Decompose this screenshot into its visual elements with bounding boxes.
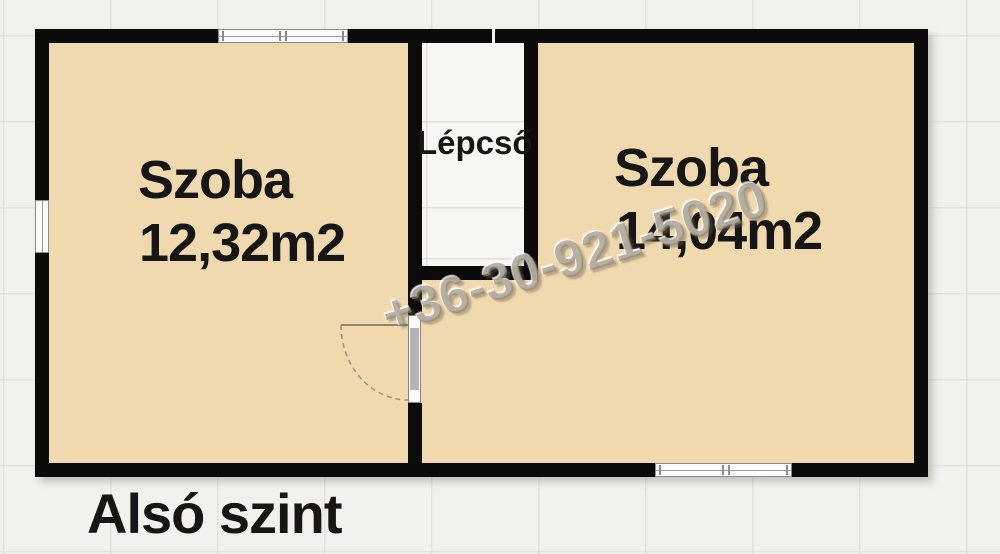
- window-tick: [285, 31, 287, 41]
- window-tick: [722, 465, 724, 475]
- outer-wall-bottom: [35, 463, 928, 477]
- window-tick: [659, 465, 661, 475]
- floor-plan: Szoba 12,32m2 Szoba 14,04m2 Lépcső Alsó …: [0, 0, 1000, 554]
- window-tick: [222, 31, 224, 41]
- window-tick: [342, 31, 344, 41]
- room-left-area-label: 12,32m2: [139, 216, 345, 270]
- window-left-icon: [35, 200, 49, 253]
- outer-wall-top: [35, 29, 928, 43]
- level-label: Alsó szint: [87, 486, 341, 542]
- staircase-label: Lépcső: [417, 126, 533, 159]
- window-tick: [728, 465, 730, 475]
- window-pane-line: [219, 36, 347, 37]
- window-pane-line: [42, 201, 43, 252]
- window-bottom-icon: [655, 463, 792, 477]
- window-top-icon: [218, 29, 348, 43]
- room-left-name-label: Szoba: [138, 153, 292, 207]
- outer-wall-left: [35, 29, 49, 477]
- outer-wall-right: [914, 29, 928, 477]
- wall-seam-notch: [492, 20, 495, 43]
- window-tick: [279, 31, 281, 41]
- window-tick: [786, 465, 788, 475]
